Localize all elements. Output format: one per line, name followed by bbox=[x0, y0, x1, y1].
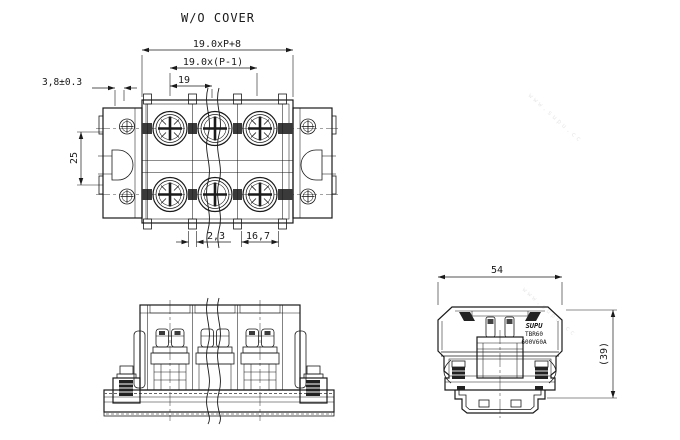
screw-large bbox=[198, 112, 232, 146]
dim-pole-centers-label: 19.0x(P-1) bbox=[183, 57, 243, 68]
screw-large bbox=[243, 112, 277, 146]
dim-wall: 2,3 bbox=[176, 231, 231, 247]
left-connector-tab bbox=[112, 150, 133, 180]
dim-opening-label: 16,7 bbox=[246, 231, 270, 242]
screw-small bbox=[120, 119, 135, 134]
corner-hatch-left bbox=[459, 312, 475, 321]
watermark-text-1: www.supu.cc bbox=[527, 92, 585, 145]
dim-height-label: (39) bbox=[599, 342, 610, 366]
screw-large bbox=[243, 178, 277, 212]
housing-outline bbox=[142, 100, 293, 223]
screw-large bbox=[198, 178, 232, 212]
dim-width-label: 54 bbox=[491, 265, 503, 276]
dim-pitch: 19 bbox=[170, 75, 212, 98]
brand-label: SUPU bbox=[526, 322, 544, 330]
right-connector-tab bbox=[301, 150, 322, 180]
corner-hatch-right bbox=[525, 312, 541, 321]
screw-small bbox=[301, 189, 316, 204]
dim-end-offset: 3,8±0.3 bbox=[42, 77, 137, 106]
dim-opening: 16,7 bbox=[242, 231, 279, 247]
dim-end-offset-label: 3,8±0.3 bbox=[42, 77, 82, 88]
right-end-plate bbox=[293, 108, 336, 218]
drawing-title: W/O COVER bbox=[181, 11, 255, 25]
dim-total-length-label: 19.0xP+8 bbox=[193, 39, 241, 50]
screw-small bbox=[120, 189, 135, 204]
dim-depth-label: 25 bbox=[69, 152, 80, 164]
rating-label: 600V60A bbox=[521, 339, 547, 346]
dim-pitch-label: 19 bbox=[178, 75, 190, 86]
dim-width-54: 54 bbox=[438, 265, 562, 305]
bottom-screw-right bbox=[535, 360, 556, 383]
top-view: 19.0xP+8 19.0x(P-1) 19 3,8±0.3 2 bbox=[42, 39, 338, 248]
plate-nub-right bbox=[535, 386, 543, 390]
screw-large bbox=[153, 112, 187, 146]
break-lines-front bbox=[207, 298, 221, 424]
product-marking: SUPU TBR60 600V60A bbox=[521, 322, 547, 346]
screw-small bbox=[301, 119, 316, 134]
pole-unit-2 bbox=[195, 305, 235, 390]
screw-large bbox=[153, 178, 187, 212]
dim-wall-label: 2,3 bbox=[207, 231, 225, 242]
right-end-clamp bbox=[300, 366, 327, 403]
technical-drawing-canvas: W/O COVER www.supu.cc www.supu.cc bbox=[0, 0, 680, 440]
dim-depth: 25 bbox=[69, 132, 103, 185]
plate-nub-left bbox=[457, 386, 465, 390]
front-view bbox=[104, 298, 334, 424]
bottom-screw-left bbox=[444, 360, 465, 383]
left-end-clamp bbox=[113, 366, 140, 403]
model-label: TBR60 bbox=[525, 331, 543, 338]
